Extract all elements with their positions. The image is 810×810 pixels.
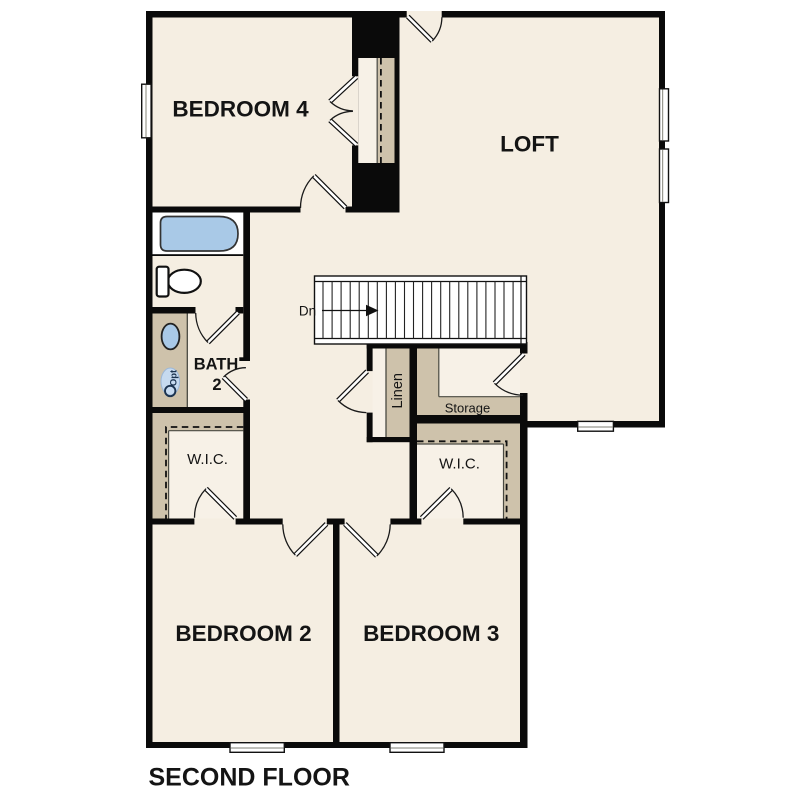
svg-text:W.I.C.: W.I.C. (439, 456, 480, 473)
svg-text:BEDROOM 4: BEDROOM 4 (172, 97, 309, 122)
svg-text:Storage: Storage (445, 401, 491, 416)
svg-text:Linen: Linen (390, 373, 406, 408)
svg-text:BEDROOM 3: BEDROOM 3 (363, 621, 499, 646)
svg-text:Opt: Opt (168, 369, 179, 386)
svg-text:BEDROOM 2: BEDROOM 2 (175, 621, 311, 646)
svg-text:LOFT: LOFT (500, 132, 559, 157)
svg-text:SECOND FLOOR: SECOND FLOOR (149, 764, 350, 792)
svg-text:Dn: Dn (299, 304, 316, 319)
svg-text:BATH: BATH (194, 356, 239, 374)
svg-text:2: 2 (212, 376, 221, 394)
svg-text:W.I.C.: W.I.C. (187, 451, 228, 468)
